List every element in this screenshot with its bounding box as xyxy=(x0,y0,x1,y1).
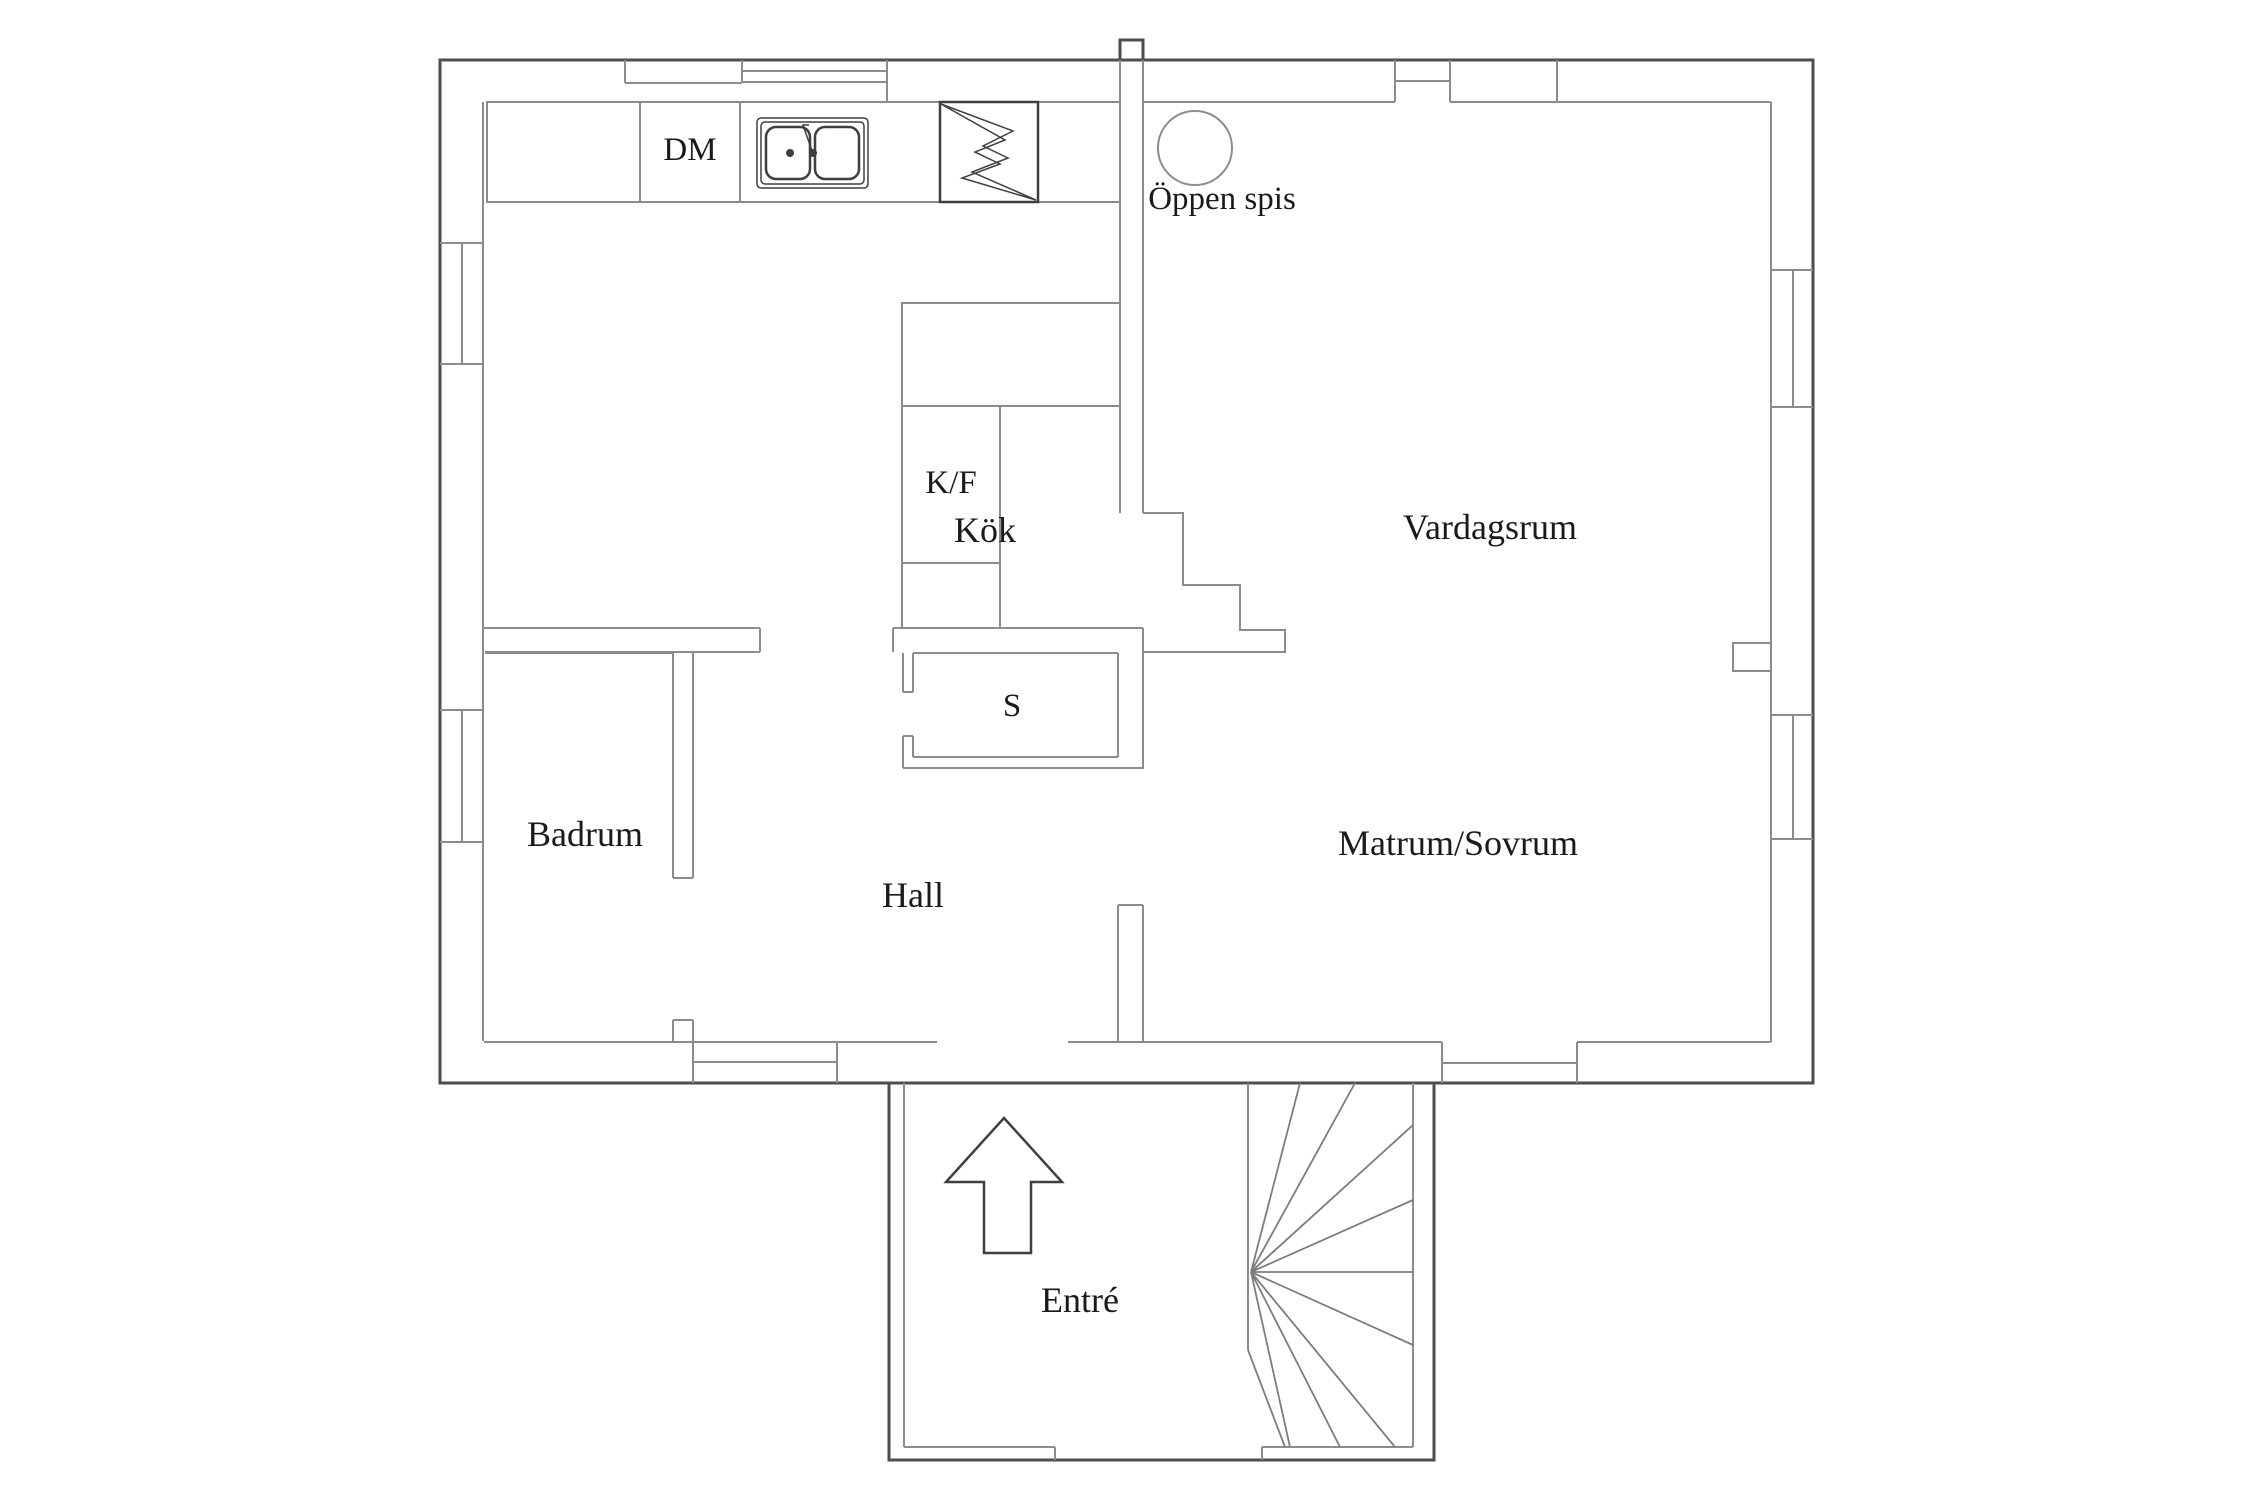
window-symbols xyxy=(440,60,1813,1083)
window-sill xyxy=(625,60,742,83)
room-label-kok: Kök xyxy=(954,510,1016,550)
window-icon xyxy=(693,1042,837,1083)
kitchen-counter xyxy=(487,102,1120,202)
fixture-label-kf: K/F xyxy=(925,465,976,501)
fireplace-circle-icon xyxy=(1158,111,1232,185)
window-icon xyxy=(440,243,483,364)
window-icon xyxy=(1442,1042,1577,1083)
labels-layer: Kök DM Öppen spis K/F Vardagsrum S Badru… xyxy=(527,132,1578,1320)
window-icon xyxy=(1771,270,1813,407)
room-label-hall: Hall xyxy=(882,875,944,915)
room-label-matrum-sovrum: Matrum/Sovrum xyxy=(1338,823,1578,863)
winder-stairs-icon xyxy=(1248,1083,1413,1447)
double-sink-icon xyxy=(757,118,868,188)
closet-block xyxy=(902,303,1120,406)
room-label-badrum: Badrum xyxy=(527,814,643,854)
window-icon xyxy=(1395,60,1557,102)
inner-walls xyxy=(483,60,1771,1460)
fixture-label-oppen-spis: Öppen spis xyxy=(1148,181,1296,217)
window-icon xyxy=(1771,715,1813,839)
room-label-entre: Entré xyxy=(1041,1280,1119,1320)
room-label-vardagsrum: Vardagsrum xyxy=(1403,507,1577,547)
entry-arrow-icon xyxy=(946,1118,1062,1253)
fixture-label-s: S xyxy=(1003,688,1021,724)
chimney-stub xyxy=(1120,40,1143,60)
window-icon xyxy=(440,710,483,842)
floorplan-canvas: Kök DM Öppen spis K/F Vardagsrum S Badru… xyxy=(0,0,2250,1500)
floorplan-page: Kök DM Öppen spis K/F Vardagsrum S Badru… xyxy=(0,0,2250,1500)
window-icon xyxy=(742,60,887,102)
stove-lightning-icon xyxy=(940,102,1038,202)
fixture-label-dm: DM xyxy=(663,132,716,168)
outer-walls xyxy=(440,40,1813,1460)
